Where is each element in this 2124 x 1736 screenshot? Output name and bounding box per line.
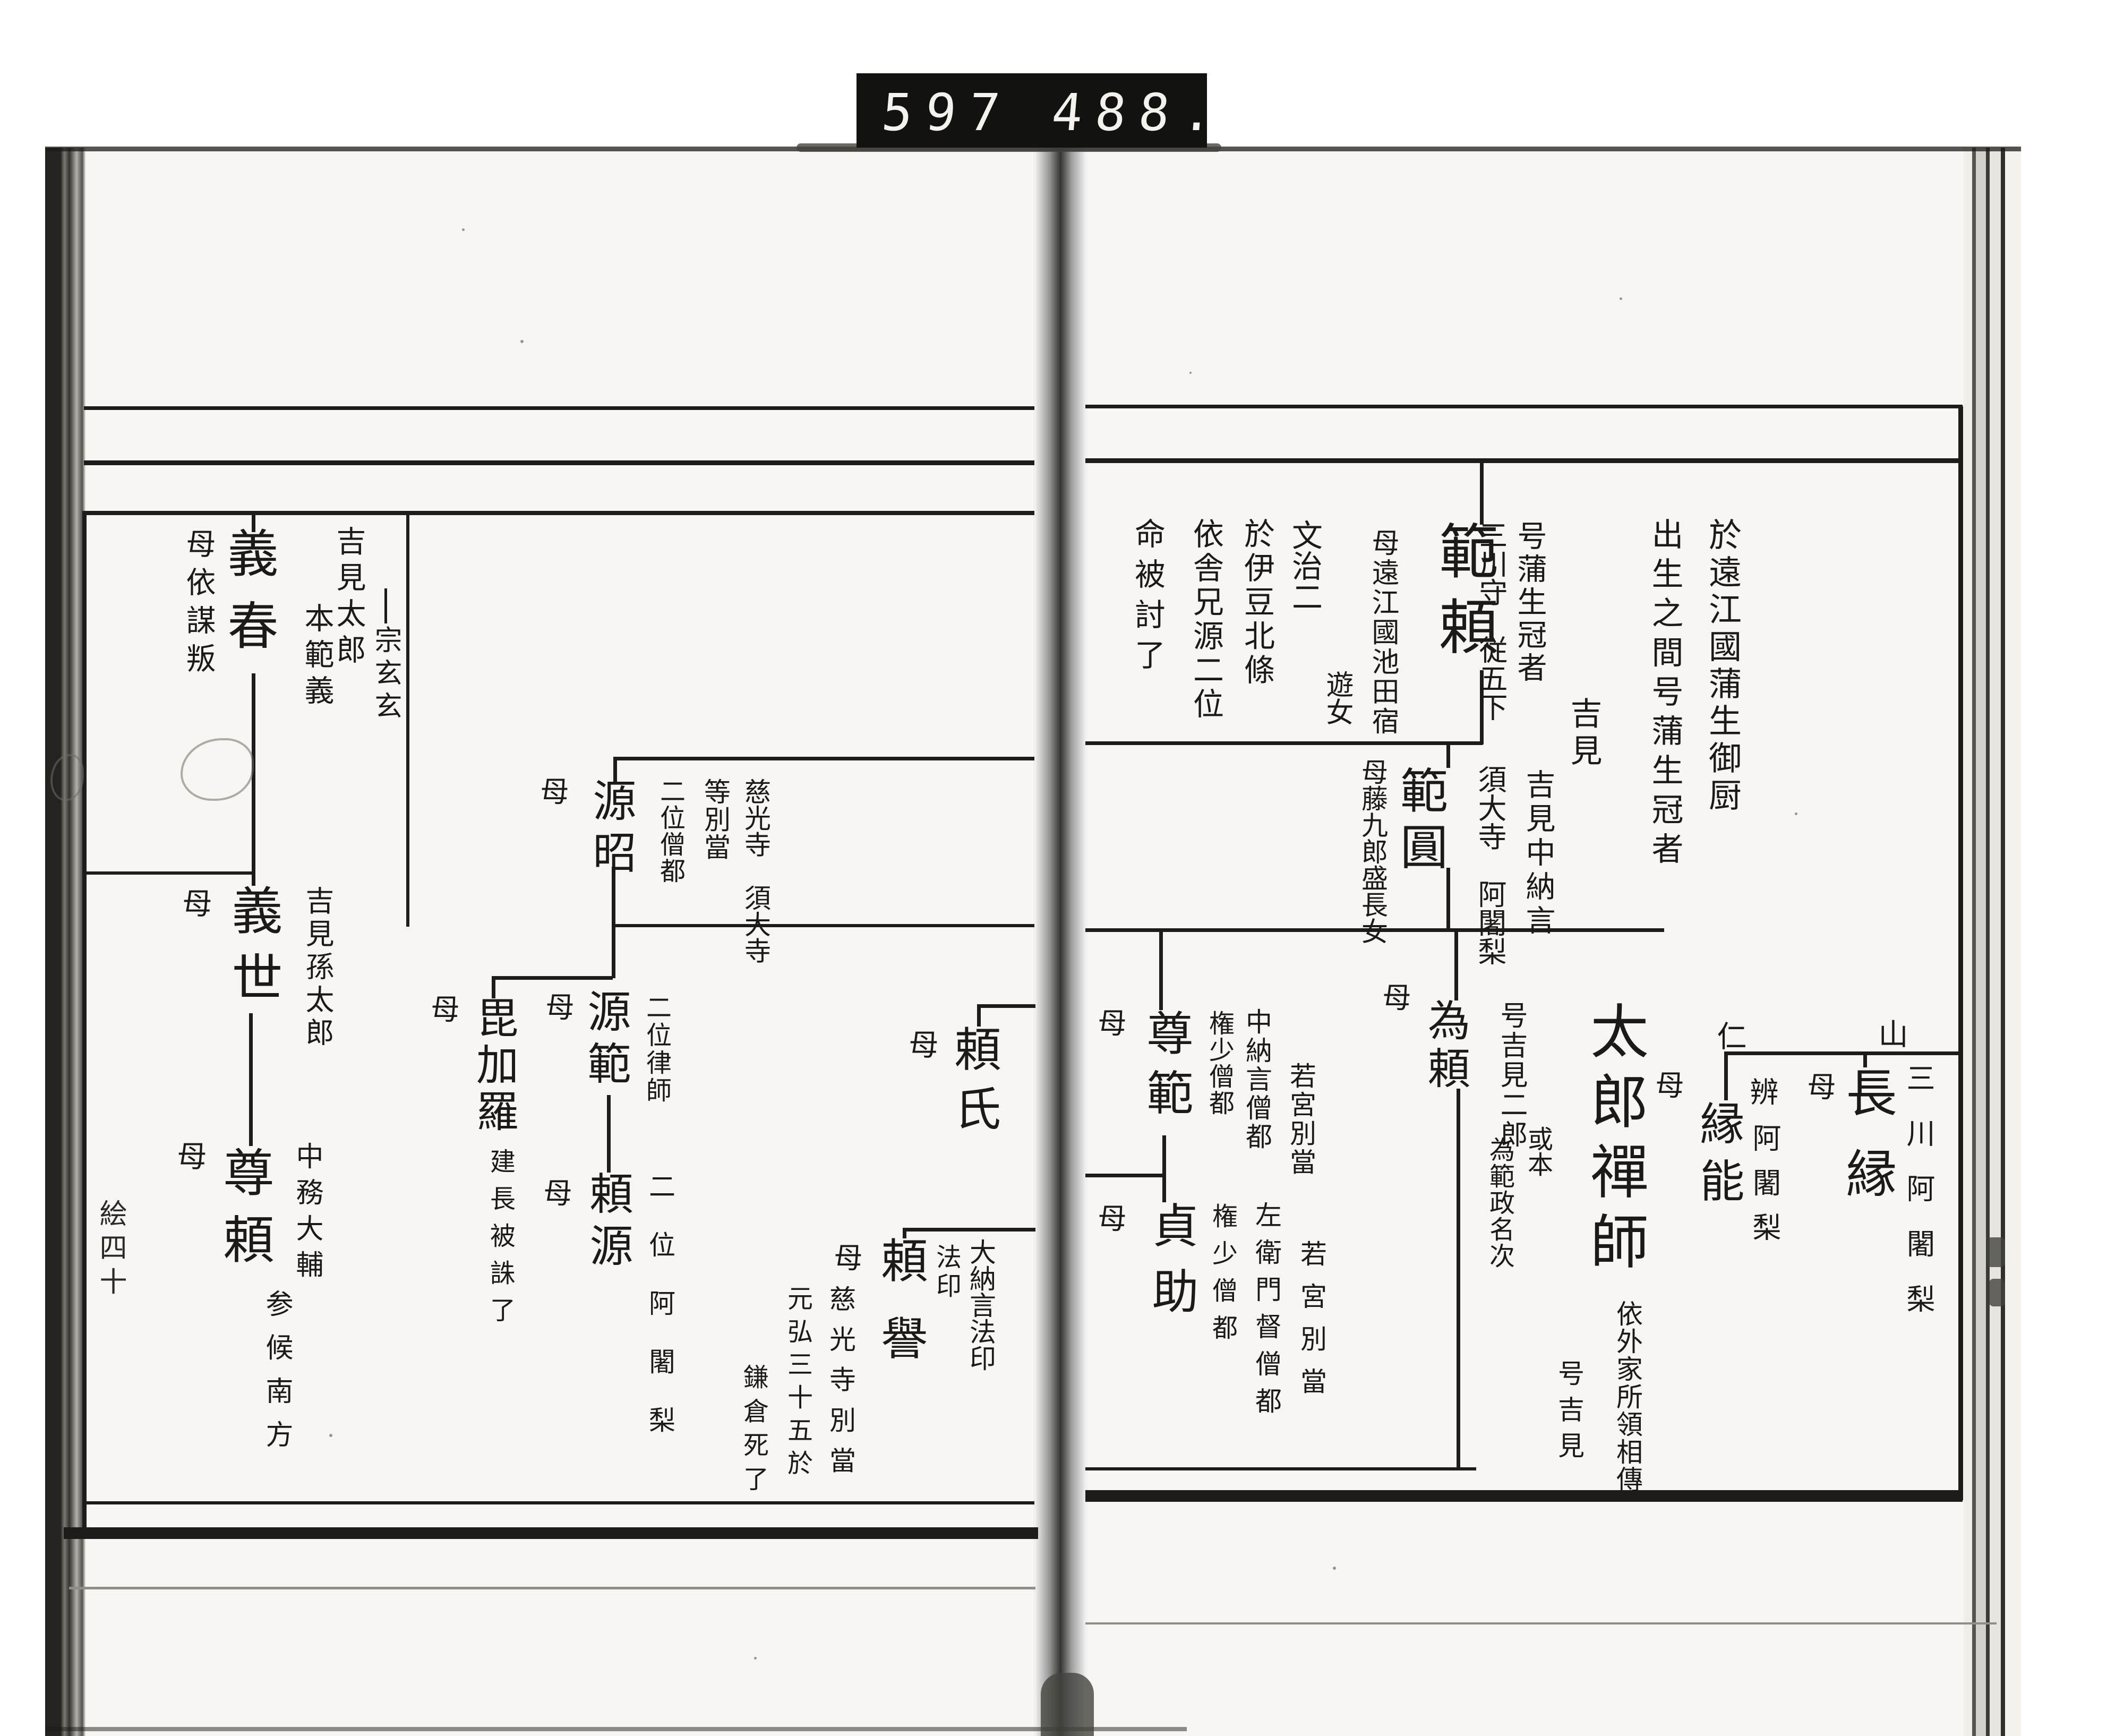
note-hanen-title1: 吉見中納言 bbox=[1523, 769, 1553, 939]
name-enno: 縁能 bbox=[1697, 1100, 1741, 1215]
book-right-edge bbox=[1964, 148, 2021, 1736]
name-teisuke: 貞助 bbox=[1148, 1201, 1195, 1333]
note-gensho-t1: 慈光寺 須大寺 bbox=[742, 778, 769, 964]
note-choen-t1: 三川阿闍梨 bbox=[1904, 1063, 1932, 1339]
note-enno-t1: 辨 bbox=[1747, 1077, 1776, 1106]
note-tameyori-variant2: 為範政名次 bbox=[1487, 1136, 1512, 1269]
note-raigen-t1: 二位阿闍梨 bbox=[647, 1173, 673, 1465]
scan-speck bbox=[1620, 297, 1622, 300]
name-yoriuji: 頼氏 bbox=[950, 1025, 997, 1144]
book-fold-shadow bbox=[1033, 148, 1088, 1736]
note-enno-mother: 母 bbox=[1652, 1070, 1681, 1099]
name-genpan: 源範 bbox=[583, 989, 627, 1093]
tree-line bbox=[1457, 1089, 1460, 1468]
note-raiyo-t1: 大納言法印 bbox=[967, 1238, 994, 1371]
tree-line bbox=[612, 867, 615, 978]
note-teisuke-t3: 権少僧都 bbox=[1210, 1203, 1235, 1352]
note-noriyori-alias: 号蒲生冠者 bbox=[1514, 520, 1544, 685]
tree-line bbox=[1724, 1051, 1960, 1055]
note-sonrai-mother: 母 bbox=[174, 1141, 204, 1170]
note-hanen-mother: 母藤九郎盛長女 bbox=[1359, 758, 1386, 944]
page-frame-line bbox=[84, 406, 1034, 410]
page-marker: 絵四十 bbox=[97, 1199, 124, 1301]
note-raiyo-mother: 母 bbox=[831, 1243, 860, 1271]
scan-speck bbox=[329, 1434, 332, 1437]
note-yoshiyo-t1: 吉見孫太郎 bbox=[303, 886, 331, 1050]
tree-line bbox=[492, 976, 495, 998]
counter-digits-right: 488. bbox=[1049, 83, 1228, 142]
tree-line bbox=[1724, 1051, 1728, 1100]
note-sonpan-t1: 若宮別當 bbox=[1288, 1062, 1314, 1177]
tree-line bbox=[1480, 463, 1484, 525]
name-hanen: 範圓 bbox=[1395, 766, 1443, 878]
note-teisuke-mother: 母 bbox=[1095, 1203, 1124, 1232]
name-gensho: 源昭 bbox=[588, 778, 632, 882]
note-tameyori-mother: 母 bbox=[1380, 982, 1408, 1011]
note-birthplace: 於遠江國蒲生御厨 bbox=[1706, 518, 1738, 815]
page-frame-line bbox=[1958, 406, 1963, 1500]
note-genpan-t1: 二位律師 bbox=[644, 994, 669, 1105]
page-frame-line bbox=[1085, 458, 1963, 463]
note-gensho-t2: 等別當 bbox=[702, 778, 729, 861]
tree-line bbox=[1085, 1174, 1164, 1177]
note-bikara-mother: 母 bbox=[428, 994, 457, 1023]
note-choen-mother: 母 bbox=[1804, 1072, 1833, 1100]
note-teisuke-t1: 若宮別當 bbox=[1298, 1240, 1325, 1410]
note-noriyori-mother: 母遠江國池田宿 bbox=[1369, 528, 1397, 737]
tree-line bbox=[903, 1228, 1035, 1232]
note-birth-alias: 出生之間号蒲生冠者 bbox=[1649, 518, 1681, 871]
scanned-genealogy-spread: 597 488. 於遠江國蒲生御厨 出生之間号蒲生冠者 号蒲 bbox=[0, 0, 2124, 1736]
name-noriyori: 範頼 bbox=[1434, 520, 1493, 671]
note-sonpan-mother: 母 bbox=[1095, 1008, 1124, 1037]
tree-line bbox=[1863, 1051, 1867, 1067]
page-frame-line bbox=[1085, 1490, 1963, 1502]
tree-line bbox=[1159, 930, 1163, 1010]
name-bikara: 毘加羅 bbox=[473, 996, 515, 1136]
name-raigen: 頼源 bbox=[585, 1171, 629, 1275]
note-hanen-title2: 須大寺 阿闍梨 bbox=[1475, 765, 1504, 965]
tree-line bbox=[384, 588, 387, 623]
note-yoshiharu-t2: 本範義 bbox=[302, 603, 331, 711]
scan-speck bbox=[462, 228, 465, 231]
page-frame-line bbox=[82, 1501, 1034, 1504]
marker-jin: 仁 bbox=[1714, 1021, 1744, 1050]
tree-line bbox=[1162, 1135, 1166, 1202]
note-taro-zenji-2: 号吉見 bbox=[1556, 1359, 1582, 1468]
note-yoshiharu-mother: 母依謀叛 bbox=[183, 528, 213, 681]
tree-line bbox=[249, 1013, 253, 1146]
note-yoshiyo-mother: 母 bbox=[179, 888, 209, 918]
tree-line bbox=[607, 1095, 611, 1173]
name-yoshiharu: 義春 bbox=[223, 527, 274, 671]
note-taro-zenji-1: 依外家所領相傳 bbox=[1614, 1300, 1641, 1493]
marker-yama: 山 bbox=[1875, 1019, 1905, 1048]
note-yoriuji-mother: 母 bbox=[906, 1029, 936, 1059]
scan-speck bbox=[1189, 372, 1192, 374]
note-tameyori-variant: 或本 bbox=[1525, 1126, 1551, 1177]
label-sogen: 宗玄玄 bbox=[372, 626, 399, 724]
page-frame-line bbox=[1085, 1467, 1476, 1470]
edge-fragment bbox=[1989, 1279, 2005, 1306]
note-bikara-death: 建長被誅了 bbox=[487, 1148, 513, 1334]
book-bottom-edge bbox=[45, 1727, 1187, 1731]
clan-label: 吉見 bbox=[1568, 697, 1599, 771]
tree-line bbox=[252, 673, 255, 886]
tree-line bbox=[615, 924, 1034, 927]
note-raiyo-n3: 鎌倉死了 bbox=[741, 1364, 766, 1500]
counter-digits-left: 597 bbox=[879, 83, 1015, 142]
tree-line bbox=[1446, 742, 1450, 768]
note-noriyori-death3: 依舎兄源二位 bbox=[1191, 518, 1221, 722]
name-tameyori: 為頼 bbox=[1424, 998, 1467, 1094]
book-left-edge bbox=[45, 148, 85, 1736]
name-choen: 長縁 bbox=[1842, 1066, 1892, 1228]
note-genpan-mother: 母 bbox=[543, 992, 571, 1021]
note-raiyo-t2: 法印 bbox=[933, 1244, 959, 1301]
note-sonrai-note: 参候南方 bbox=[263, 1289, 290, 1464]
edge-fragment bbox=[1987, 1237, 2005, 1267]
tree-line bbox=[1454, 930, 1458, 1000]
note-noriyori-death1: 文治二 bbox=[1289, 519, 1320, 612]
name-sonrai: 尊頼 bbox=[219, 1146, 270, 1280]
page-frame-line bbox=[64, 1527, 1038, 1539]
tree-line bbox=[406, 513, 409, 927]
tree-line bbox=[613, 757, 1034, 760]
note-teisuke-t2: 左衛門督僧都 bbox=[1253, 1201, 1280, 1424]
page-frame-line bbox=[82, 511, 87, 1533]
note-tameyori-alias: 号吉見二郎 bbox=[1497, 1001, 1525, 1150]
name-yoshiyo: 義世 bbox=[227, 884, 278, 1018]
note-noriyori-death2: 於伊豆北條 bbox=[1241, 518, 1272, 688]
note-sonpan-t3: 権少僧都 bbox=[1206, 1010, 1232, 1116]
note-noriyori-mother2: 遊女 bbox=[1323, 670, 1351, 725]
note-raiyo-n2: 元弘三十五於 bbox=[785, 1285, 810, 1483]
scan-speck bbox=[754, 1657, 757, 1660]
tree-line bbox=[492, 976, 613, 980]
note-raigen-mother: 母 bbox=[541, 1178, 569, 1207]
note-gensho-t3: 二位僧都 bbox=[657, 778, 683, 884]
scan-speck bbox=[1795, 813, 1797, 815]
name-taro-zenji: 太郎禪師 bbox=[1585, 1001, 1643, 1281]
scan-speck bbox=[520, 340, 524, 343]
fold-bottom-blotch bbox=[1041, 1673, 1094, 1736]
film-counter: 597 488. bbox=[857, 73, 1207, 148]
tree-line bbox=[977, 1004, 981, 1027]
page-bottom-edge-line bbox=[1085, 1622, 1997, 1624]
tree-line bbox=[977, 1004, 1035, 1008]
note-yoshiharu-t1: 吉見太郎 bbox=[333, 526, 363, 670]
page-frame-line bbox=[84, 460, 1034, 465]
note-sonpan-t2: 中納言僧都 bbox=[1244, 1008, 1270, 1151]
note-gensho-mother: 母 bbox=[537, 776, 566, 805]
note-sonrai-t1: 中務大輔 bbox=[293, 1142, 321, 1286]
page-frame-line bbox=[82, 511, 1034, 515]
note-enno-t2: 阿闍梨 bbox=[1750, 1123, 1778, 1257]
tree-line bbox=[1085, 741, 1483, 745]
tree-line bbox=[84, 871, 255, 875]
note-noriyori-death4: 命被討了 bbox=[1132, 518, 1163, 679]
page-frame-line bbox=[1085, 405, 1963, 408]
note-raiyo-n1: 慈光寺別當 bbox=[827, 1285, 854, 1487]
name-sonpan: 尊範 bbox=[1143, 1009, 1189, 1128]
name-raiyo: 頼譽 bbox=[877, 1236, 924, 1393]
page-bottom-edge-line bbox=[69, 1587, 1035, 1589]
scan-speck bbox=[1333, 1567, 1336, 1570]
